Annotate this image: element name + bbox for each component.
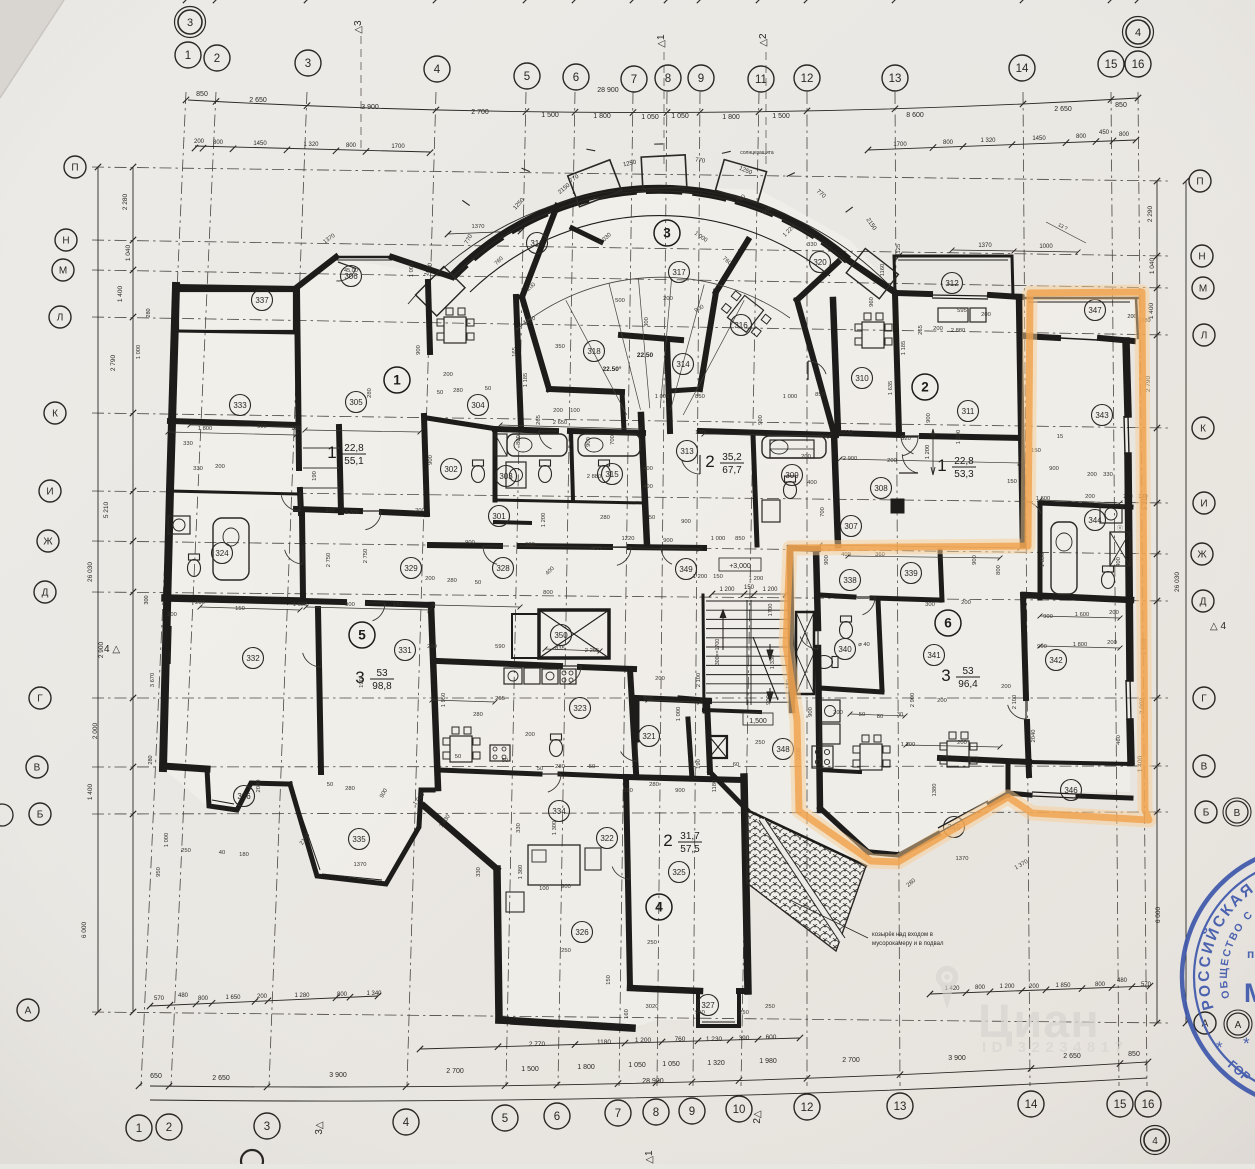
svg-text:1220: 1220 xyxy=(840,430,853,436)
svg-text:306: 306 xyxy=(344,272,358,281)
svg-text:⌀ 40: ⌀ 40 xyxy=(858,642,870,648)
svg-text:1 040: 1 040 xyxy=(1149,257,1156,274)
svg-text:200: 200 xyxy=(425,576,435,582)
svg-text:15: 15 xyxy=(1057,434,1063,440)
svg-text:280: 280 xyxy=(345,786,355,792)
svg-text:3: 3 xyxy=(663,226,671,241)
svg-text:150: 150 xyxy=(235,606,245,612)
svg-text:570: 570 xyxy=(1141,982,1152,988)
svg-text:160: 160 xyxy=(624,1009,630,1019)
svg-text:330: 330 xyxy=(183,441,193,447)
svg-text:4: 4 xyxy=(434,64,441,76)
svg-text:В: В xyxy=(1234,808,1241,819)
svg-text:1 200: 1 200 xyxy=(999,984,1015,990)
svg-text:250: 250 xyxy=(739,1010,749,1016)
svg-text:3: 3 xyxy=(941,666,950,685)
svg-text:Ж: Ж xyxy=(1197,550,1207,561)
svg-text:200: 200 xyxy=(957,740,967,746)
svg-text:2040: 2040 xyxy=(256,780,262,793)
svg-text:1 850: 1 850 xyxy=(1055,983,1071,989)
svg-text:400: 400 xyxy=(1116,557,1122,567)
svg-text:334: 334 xyxy=(552,807,566,816)
svg-text:1 200: 1 200 xyxy=(925,445,931,460)
svg-text:200: 200 xyxy=(1087,472,1097,478)
svg-text:800: 800 xyxy=(1119,132,1130,138)
svg-text:2 880: 2 880 xyxy=(587,474,602,480)
svg-text:318: 318 xyxy=(587,347,601,356)
svg-text:солнцезащита: солнцезащита xyxy=(740,150,774,156)
svg-text:336: 336 xyxy=(237,792,251,801)
svg-text:1 000: 1 000 xyxy=(676,707,682,722)
svg-text:4: 4 xyxy=(403,1117,410,1129)
svg-text:280: 280 xyxy=(367,388,373,398)
svg-text:1 320: 1 320 xyxy=(980,138,996,144)
svg-text:900: 900 xyxy=(681,519,691,525)
svg-text:П: П xyxy=(1196,177,1203,188)
svg-text:600: 600 xyxy=(766,1034,777,1041)
svg-text:300×=1700: 300×=1700 xyxy=(715,639,721,665)
svg-text:331: 331 xyxy=(398,646,412,655)
svg-text:280: 280 xyxy=(148,755,154,764)
svg-text:Н: Н xyxy=(62,236,69,247)
svg-text:900: 900 xyxy=(663,538,673,544)
svg-text:265: 265 xyxy=(495,696,505,702)
svg-text:3020: 3020 xyxy=(646,1004,659,1010)
svg-text:200: 200 xyxy=(167,612,177,618)
svg-text:324: 324 xyxy=(215,549,229,558)
svg-text:Л: Л xyxy=(57,313,64,324)
svg-text:800: 800 xyxy=(996,565,1002,575)
svg-text:200: 200 xyxy=(194,139,205,145)
svg-text:313: 313 xyxy=(680,447,694,456)
svg-text:190: 190 xyxy=(312,471,318,481)
svg-text:26 030: 26 030 xyxy=(1174,572,1181,592)
svg-text:50: 50 xyxy=(327,782,333,788)
svg-text:327: 327 xyxy=(701,1001,715,1010)
svg-text:400: 400 xyxy=(643,484,653,490)
svg-text:300: 300 xyxy=(925,602,935,608)
svg-text:50: 50 xyxy=(485,386,491,392)
svg-text:850: 850 xyxy=(1128,1051,1140,1058)
svg-text:6: 6 xyxy=(573,72,579,84)
svg-text:800: 800 xyxy=(1076,134,1087,140)
svg-text:12: 12 xyxy=(801,1102,814,1114)
svg-text:400: 400 xyxy=(643,466,653,472)
svg-text:Б: Б xyxy=(1203,808,1210,819)
svg-text:1 050: 1 050 xyxy=(628,1062,646,1069)
svg-text:53: 53 xyxy=(376,668,388,679)
svg-text:1 200: 1 200 xyxy=(693,574,708,580)
svg-text:1 800: 1 800 xyxy=(577,1064,595,1071)
svg-text:900: 900 xyxy=(428,455,434,465)
svg-text:16: 16 xyxy=(1132,59,1145,71)
svg-text:12: 12 xyxy=(801,73,814,85)
svg-text:480: 480 xyxy=(1117,978,1128,984)
svg-text:200: 200 xyxy=(833,710,843,716)
svg-text:2 650: 2 650 xyxy=(1054,106,1072,113)
svg-text:150: 150 xyxy=(713,574,723,580)
svg-text:150: 150 xyxy=(393,602,403,608)
svg-text:1450: 1450 xyxy=(253,141,267,147)
svg-text:1 500: 1 500 xyxy=(521,1066,539,1073)
svg-text:мусорокамеру и в подвал: мусорокамеру и в подвал xyxy=(872,941,944,947)
svg-text:2 650: 2 650 xyxy=(249,97,267,104)
svg-text:302: 302 xyxy=(444,465,458,474)
svg-text:1 050: 1 050 xyxy=(671,113,689,120)
svg-text:1 400: 1 400 xyxy=(87,783,94,800)
svg-text:9: 9 xyxy=(689,1106,695,1118)
svg-text:1: 1 xyxy=(136,1123,142,1135)
svg-text:200: 200 xyxy=(553,408,563,414)
svg-text:13: 13 xyxy=(889,73,902,85)
svg-text:330: 330 xyxy=(516,823,522,833)
svg-text:3: 3 xyxy=(264,1121,270,1133)
svg-text:*: * xyxy=(1243,1034,1250,1053)
svg-text:950: 950 xyxy=(156,867,162,877)
svg-text:100: 100 xyxy=(539,886,549,892)
svg-text:280: 280 xyxy=(473,712,483,718)
svg-text:200: 200 xyxy=(933,326,943,332)
svg-text:900: 900 xyxy=(561,884,571,890)
svg-text:311: 311 xyxy=(962,407,975,416)
svg-text:1 000: 1 000 xyxy=(655,394,670,400)
svg-text:1 400: 1 400 xyxy=(117,285,124,302)
svg-text:1450: 1450 xyxy=(1032,136,1046,142)
svg-text:900: 900 xyxy=(824,555,830,565)
svg-text:16: 16 xyxy=(1142,1099,1155,1111)
svg-text:8 600: 8 600 xyxy=(906,112,924,119)
svg-text:2 790: 2 790 xyxy=(110,354,117,371)
svg-text:1 380: 1 380 xyxy=(518,865,524,880)
svg-text:2: 2 xyxy=(921,380,929,395)
svg-text:850: 850 xyxy=(196,91,208,98)
svg-text:200: 200 xyxy=(1029,984,1040,990)
svg-text:200: 200 xyxy=(961,600,971,606)
svg-text:900: 900 xyxy=(808,707,814,717)
svg-text:280: 280 xyxy=(623,788,633,794)
svg-text:1 320: 1 320 xyxy=(345,510,360,516)
svg-text:800: 800 xyxy=(516,435,522,445)
svg-text:М: М xyxy=(59,266,67,277)
svg-text:835: 835 xyxy=(555,646,565,652)
svg-text:40: 40 xyxy=(219,850,225,856)
svg-text:2 880: 2 880 xyxy=(951,328,966,334)
svg-text:280: 280 xyxy=(146,308,152,317)
svg-text:330: 330 xyxy=(807,242,817,248)
svg-text:4 △: 4 △ xyxy=(104,644,120,655)
svg-text:800: 800 xyxy=(1095,982,1106,988)
svg-text:1 200: 1 200 xyxy=(749,576,764,582)
svg-text:1 650: 1 650 xyxy=(225,995,241,1001)
svg-text:55,1: 55,1 xyxy=(344,456,364,467)
svg-text:2 100: 2 100 xyxy=(1012,695,1018,710)
svg-text:150: 150 xyxy=(744,585,755,591)
svg-text:30: 30 xyxy=(897,712,903,718)
svg-text:320: 320 xyxy=(813,258,827,267)
svg-text:570: 570 xyxy=(154,996,165,1002)
svg-text:3 900: 3 900 xyxy=(329,1072,347,1079)
svg-text:280: 280 xyxy=(555,764,565,770)
svg-text:900: 900 xyxy=(643,696,653,702)
svg-text:8: 8 xyxy=(665,73,671,85)
svg-text:1370: 1370 xyxy=(472,224,485,230)
svg-text:200: 200 xyxy=(427,644,437,650)
svg-text:1 200: 1 200 xyxy=(719,587,735,593)
svg-text:315: 315 xyxy=(605,470,619,479)
svg-text:2 750: 2 750 xyxy=(326,553,332,568)
svg-text:3: 3 xyxy=(187,17,193,29)
svg-text:1 000: 1 000 xyxy=(136,345,142,360)
svg-text:330: 330 xyxy=(476,867,482,877)
svg-text:339: 339 xyxy=(904,569,918,578)
svg-text:1 185: 1 185 xyxy=(523,373,529,388)
svg-text:1370: 1370 xyxy=(978,243,992,249)
svg-text:Н: Н xyxy=(1198,252,1205,263)
svg-text:900: 900 xyxy=(675,788,685,794)
svg-text:96,4: 96,4 xyxy=(958,679,978,690)
svg-text:310: 310 xyxy=(855,374,869,383)
svg-text:165: 165 xyxy=(512,347,518,357)
svg-text:300: 300 xyxy=(144,595,150,604)
svg-text:△2: △2 xyxy=(758,33,769,47)
svg-text:1370: 1370 xyxy=(354,862,367,868)
svg-text:5: 5 xyxy=(524,71,530,83)
svg-text:332: 332 xyxy=(246,654,260,663)
svg-text:2 290: 2 290 xyxy=(1147,205,1154,222)
svg-text:346: 346 xyxy=(1064,786,1078,795)
svg-text:2 100: 2 100 xyxy=(696,673,702,688)
svg-text:200: 200 xyxy=(257,994,268,1000)
svg-text:200: 200 xyxy=(215,464,225,470)
svg-text:1 600: 1 600 xyxy=(1036,496,1051,502)
svg-text:1 500: 1 500 xyxy=(541,112,559,119)
svg-text:330: 330 xyxy=(1103,472,1113,478)
svg-text:338: 338 xyxy=(843,576,857,585)
svg-text:50: 50 xyxy=(589,764,595,770)
svg-text:57,5: 57,5 xyxy=(680,844,700,855)
svg-text:305: 305 xyxy=(349,398,363,407)
svg-text:1180: 1180 xyxy=(597,1039,611,1046)
svg-text:341: 341 xyxy=(927,651,941,660)
svg-text:26 030: 26 030 xyxy=(87,562,94,582)
svg-text:Б: Б xyxy=(37,810,44,821)
svg-text:900: 900 xyxy=(1049,466,1059,472)
svg-text:Г: Г xyxy=(1201,694,1207,705)
svg-text:6: 6 xyxy=(554,1111,560,1123)
svg-text:7: 7 xyxy=(615,1108,621,1120)
svg-text:347: 347 xyxy=(1088,306,1102,315)
svg-text:301: 301 xyxy=(492,512,506,521)
svg-text:1,500: 1,500 xyxy=(749,718,767,725)
svg-text:А: А xyxy=(1235,1020,1242,1031)
svg-text:1700: 1700 xyxy=(893,142,907,148)
svg-text:△1: △1 xyxy=(644,1150,655,1164)
svg-text:5: 5 xyxy=(502,1113,508,1125)
svg-text:308: 308 xyxy=(874,484,888,493)
svg-text:200: 200 xyxy=(195,600,205,606)
svg-text:349: 349 xyxy=(679,565,693,574)
svg-text:1 800: 1 800 xyxy=(198,426,213,432)
svg-text:200: 200 xyxy=(415,508,425,514)
svg-text:2 650: 2 650 xyxy=(212,1075,230,1082)
svg-text:И: И xyxy=(1200,499,1207,510)
svg-text:3: 3 xyxy=(305,58,311,70)
svg-text:3△: 3△ xyxy=(314,1121,325,1135)
svg-text:1 050: 1 050 xyxy=(662,1061,680,1068)
svg-text:1 200: 1 200 xyxy=(541,513,547,528)
svg-text:1 850: 1 850 xyxy=(1040,553,1046,568)
svg-text:250: 250 xyxy=(765,1004,775,1010)
svg-text:850: 850 xyxy=(1115,102,1127,109)
svg-text:800: 800 xyxy=(543,590,553,596)
svg-text:200: 200 xyxy=(525,732,535,738)
svg-text:1160: 1160 xyxy=(880,264,886,276)
svg-text:321: 321 xyxy=(642,732,656,741)
svg-text:1 635: 1 635 xyxy=(888,381,894,396)
svg-text:800: 800 xyxy=(213,140,224,146)
svg-text:35,2: 35,2 xyxy=(722,452,742,463)
svg-text:К: К xyxy=(52,409,58,420)
svg-text:2 700: 2 700 xyxy=(446,1068,464,1075)
svg-text:350: 350 xyxy=(554,631,568,640)
svg-text:1 280: 1 280 xyxy=(294,993,310,999)
svg-text:1 980: 1 980 xyxy=(759,1058,777,1065)
svg-text:900: 900 xyxy=(586,437,592,447)
svg-text:100: 100 xyxy=(570,408,580,414)
svg-text:△1: △1 xyxy=(656,34,667,48)
svg-text:800: 800 xyxy=(943,140,954,146)
svg-text:265: 265 xyxy=(918,325,924,335)
svg-text:15: 15 xyxy=(1114,1099,1127,1111)
svg-text:348: 348 xyxy=(776,745,790,754)
svg-text:К: К xyxy=(1200,424,1206,435)
svg-text:5 210: 5 210 xyxy=(103,501,110,518)
svg-text:1 600: 1 600 xyxy=(293,602,308,608)
svg-text:316: 316 xyxy=(734,321,748,330)
svg-text:342: 342 xyxy=(1049,656,1063,665)
svg-text:190: 190 xyxy=(359,678,365,688)
svg-text:680: 680 xyxy=(525,542,535,548)
svg-text:6: 6 xyxy=(944,616,952,631)
svg-text:390: 390 xyxy=(739,1035,750,1042)
svg-text:460: 460 xyxy=(1116,735,1122,745)
svg-text:304: 304 xyxy=(471,401,485,410)
svg-text:50: 50 xyxy=(502,758,508,764)
svg-text:8: 8 xyxy=(653,1107,659,1119)
svg-text:1 040: 1 040 xyxy=(125,244,132,261)
svg-text:326: 326 xyxy=(575,928,589,937)
svg-text:500: 500 xyxy=(615,298,625,304)
svg-text:13: 13 xyxy=(894,1101,907,1113)
svg-text:333: 333 xyxy=(233,401,247,410)
svg-text:2 280: 2 280 xyxy=(122,193,129,210)
svg-text:2 650: 2 650 xyxy=(553,420,568,426)
svg-text:480: 480 xyxy=(178,993,189,999)
svg-text:280: 280 xyxy=(447,578,457,584)
svg-text:1 200: 1 200 xyxy=(762,587,778,593)
svg-text:190: 190 xyxy=(696,759,702,769)
svg-text:312: 312 xyxy=(945,279,959,288)
svg-text:350: 350 xyxy=(555,344,565,350)
svg-text:1 000: 1 000 xyxy=(783,394,798,400)
svg-text:1380: 1380 xyxy=(932,784,938,797)
svg-text:М: М xyxy=(1199,284,1207,295)
svg-text:200: 200 xyxy=(1107,640,1117,646)
svg-text:В: В xyxy=(1201,762,1208,773)
svg-text:800: 800 xyxy=(198,996,209,1002)
svg-text:В: В xyxy=(34,763,41,774)
svg-text:1: 1 xyxy=(327,443,336,462)
svg-text:5: 5 xyxy=(358,628,366,643)
svg-text:1125: 1125 xyxy=(896,244,902,256)
svg-text:200: 200 xyxy=(663,296,673,302)
svg-text:200: 200 xyxy=(1001,684,1011,690)
svg-text:900: 900 xyxy=(926,413,932,423)
svg-text:280: 280 xyxy=(600,515,610,521)
svg-text:850: 850 xyxy=(735,536,745,542)
svg-text:1 000: 1 000 xyxy=(711,536,726,542)
svg-text:31,7: 31,7 xyxy=(680,831,700,842)
svg-text:2: 2 xyxy=(663,831,672,850)
svg-text:1 200: 1 200 xyxy=(956,430,962,445)
svg-text:50: 50 xyxy=(475,580,481,586)
svg-text:1 200: 1 200 xyxy=(635,1037,652,1044)
svg-text:280: 280 xyxy=(649,782,659,788)
svg-text:1 320: 1 320 xyxy=(303,142,319,148)
svg-text:650: 650 xyxy=(150,1073,162,1080)
svg-text:1 800: 1 800 xyxy=(593,113,611,120)
svg-text:козырёк над входом в: козырёк над входом в xyxy=(872,932,933,938)
svg-text:Л: Л xyxy=(1201,331,1208,342)
svg-text:323: 323 xyxy=(573,704,587,713)
svg-text:2: 2 xyxy=(166,1122,172,1134)
svg-text:*: * xyxy=(1216,1038,1223,1057)
svg-text:850: 850 xyxy=(695,394,705,400)
svg-text:И: И xyxy=(46,487,53,498)
svg-text:14: 14 xyxy=(1025,1099,1038,1111)
svg-text:М: М xyxy=(1244,978,1255,1008)
svg-text:1 500: 1 500 xyxy=(772,113,790,120)
svg-text:280: 280 xyxy=(453,388,463,394)
svg-text:317: 317 xyxy=(672,268,686,277)
svg-text:1000: 1000 xyxy=(1039,244,1053,250)
svg-text:960: 960 xyxy=(869,297,875,307)
svg-text:2 750: 2 750 xyxy=(363,549,369,564)
svg-text:320: 320 xyxy=(901,436,911,442)
svg-text:2 700: 2 700 xyxy=(471,109,489,116)
svg-text:300: 300 xyxy=(644,317,650,327)
svg-text:328: 328 xyxy=(496,564,510,573)
svg-text:303: 303 xyxy=(499,472,513,481)
svg-text:15: 15 xyxy=(1105,59,1118,71)
svg-text:760: 760 xyxy=(675,1036,686,1043)
svg-text:337: 337 xyxy=(255,296,269,305)
svg-text:2 900: 2 900 xyxy=(98,641,105,658)
svg-text:1 230: 1 230 xyxy=(706,1036,723,1043)
svg-text:П: П xyxy=(71,163,78,174)
svg-text:53,3: 53,3 xyxy=(954,469,974,480)
svg-text:1 800: 1 800 xyxy=(722,114,740,121)
svg-text:50: 50 xyxy=(455,754,461,760)
svg-text:200: 200 xyxy=(1085,494,1095,500)
svg-text:2040: 2040 xyxy=(1031,730,1037,743)
svg-text:200: 200 xyxy=(981,312,991,318)
svg-text:800: 800 xyxy=(975,985,986,991)
svg-text:Г: Г xyxy=(37,694,43,705)
svg-text:250: 250 xyxy=(755,740,765,746)
svg-text:△ 4: △ 4 xyxy=(1210,621,1226,632)
svg-text:А: А xyxy=(25,1006,32,1017)
